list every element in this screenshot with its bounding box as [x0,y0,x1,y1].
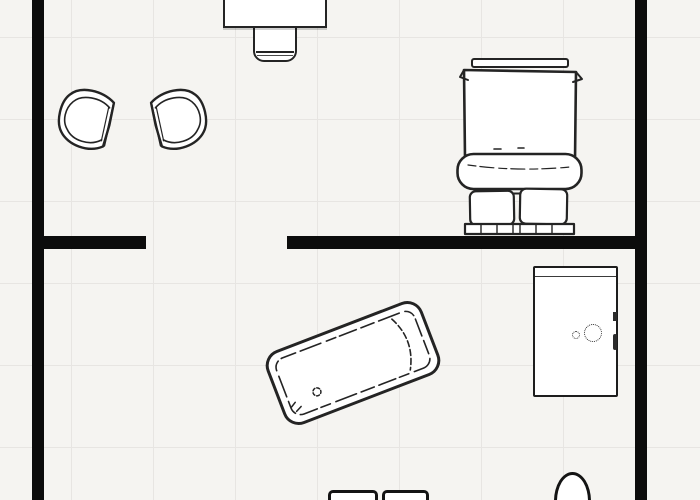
cabinet-small-knob-icon [572,331,580,339]
toilet[interactable] [554,472,591,500]
armchair-right[interactable] [139,80,215,159]
desk-chair-backrest-line [256,51,294,53]
bathtub[interactable] [260,296,446,431]
cabinet-lid-line [535,276,616,277]
wall-divider-right[interactable] [287,236,647,249]
bed-icon [456,56,584,236]
bed[interactable] [456,56,584,236]
desk[interactable] [223,0,327,28]
cabinet-handle-icon [613,334,617,350]
cabinet-knob-icon [584,324,602,342]
armchair-left[interactable] [50,80,126,159]
stool-right[interactable] [382,490,429,500]
desk-chair[interactable] [253,24,297,62]
floor-plan-canvas [0,0,700,500]
desk-chair-backrest-line-2 [257,55,293,56]
wall-left[interactable] [32,0,44,500]
cabinet-hinge-icon [613,312,617,321]
armchair-icon [50,80,126,159]
bathtub-icon [260,296,446,431]
stool-left[interactable] [328,490,378,500]
wall-divider-left[interactable] [32,236,146,249]
cabinet[interactable] [533,266,618,397]
wall-right[interactable] [635,0,647,500]
armchair-icon [139,80,215,159]
